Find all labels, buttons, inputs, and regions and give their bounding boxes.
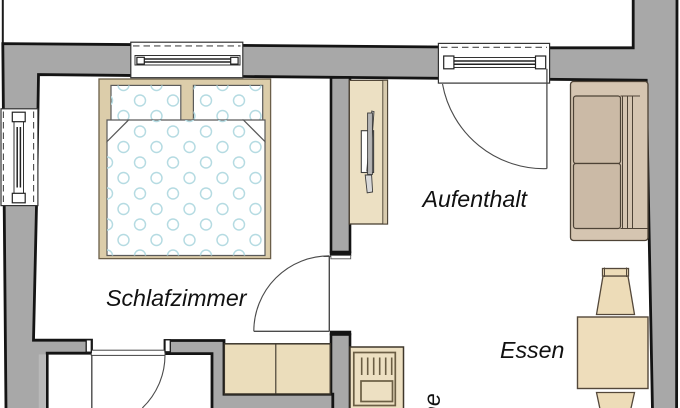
svg-text:Schlafzimmer: Schlafzimmer: [106, 285, 248, 311]
svg-text:Aufenthalt: Aufenthalt: [421, 186, 529, 212]
svg-text:Essen: Essen: [500, 337, 564, 363]
svg-text:Küche: Küche: [419, 393, 445, 408]
